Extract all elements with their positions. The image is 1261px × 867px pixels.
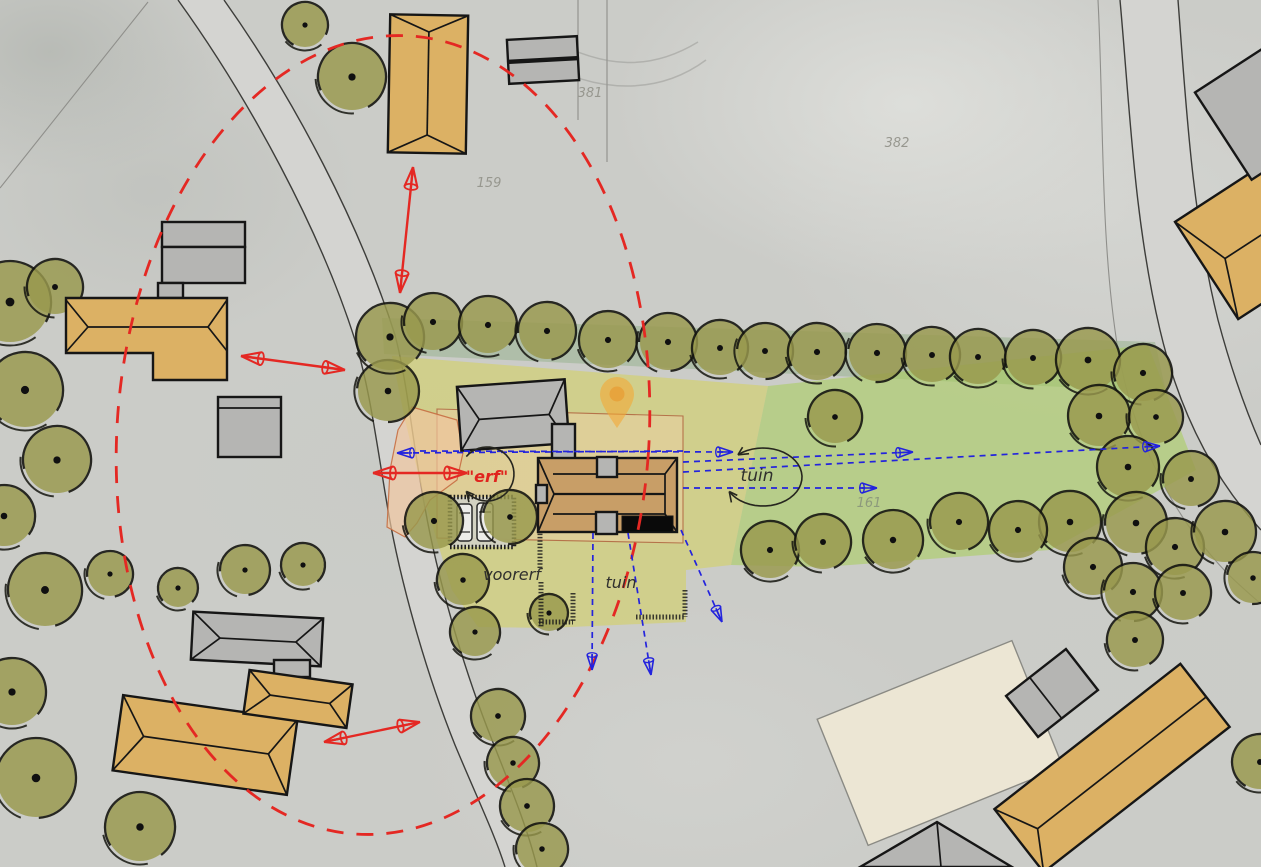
svg-text:159: 159 xyxy=(477,176,502,191)
tree xyxy=(103,792,175,864)
building-northeast-gray xyxy=(1195,16,1261,179)
tree xyxy=(218,545,270,596)
parcel-382: 382 xyxy=(885,136,910,151)
tree xyxy=(20,426,91,496)
red-arrow xyxy=(394,166,420,293)
shed-west-gray xyxy=(218,397,281,457)
tree xyxy=(928,493,989,553)
tree xyxy=(806,390,863,446)
farmhouse-west xyxy=(66,298,227,380)
tree xyxy=(0,485,35,550)
tree xyxy=(6,553,83,629)
red-arrow xyxy=(240,350,346,377)
tree xyxy=(0,658,46,728)
svg-text:voorerf: voorerf xyxy=(483,565,543,584)
tree xyxy=(528,594,568,635)
tree xyxy=(316,43,386,113)
tree xyxy=(741,521,799,582)
parcel-381: 381 xyxy=(578,86,603,101)
label-erf: "erf" xyxy=(466,467,508,486)
parcel-161: 161 xyxy=(857,496,882,511)
svg-text:tuin: tuin xyxy=(741,466,774,486)
svg-text:382: 382 xyxy=(885,136,910,151)
site-plan-svg: "erf"tuintuinvoorerf159381382161 xyxy=(0,0,1261,867)
tree xyxy=(279,543,325,590)
building-southwest-gray xyxy=(191,612,323,667)
svg-text:tuin: tuin xyxy=(606,573,637,592)
label-tuin-east: tuin xyxy=(741,466,774,486)
tree xyxy=(402,293,463,353)
tree xyxy=(435,554,489,608)
barn-west-gray xyxy=(158,222,245,298)
tree xyxy=(1105,612,1163,670)
tree xyxy=(0,738,76,818)
site-plan: "erf"tuintuinvoorerf159381382161 xyxy=(0,0,1261,867)
label-tuin-south: tuin xyxy=(606,573,637,592)
tree xyxy=(792,514,851,572)
tree xyxy=(786,323,846,383)
tree xyxy=(515,302,576,361)
tree xyxy=(1003,330,1062,388)
svg-text:381: 381 xyxy=(578,86,603,101)
label-voorerf: voorerf xyxy=(483,565,543,584)
svg-text:"erf": "erf" xyxy=(466,467,508,486)
tree xyxy=(1232,734,1261,792)
tree xyxy=(403,492,463,553)
tree xyxy=(1161,451,1219,509)
tree xyxy=(157,568,198,610)
tree xyxy=(1153,565,1211,623)
shed-north-gray xyxy=(507,36,579,84)
main-house xyxy=(536,457,677,534)
tree xyxy=(0,352,63,430)
tree xyxy=(282,2,328,51)
svg-text:161: 161 xyxy=(857,496,882,511)
parcel-159: 159 xyxy=(477,176,502,191)
tree xyxy=(636,313,697,372)
